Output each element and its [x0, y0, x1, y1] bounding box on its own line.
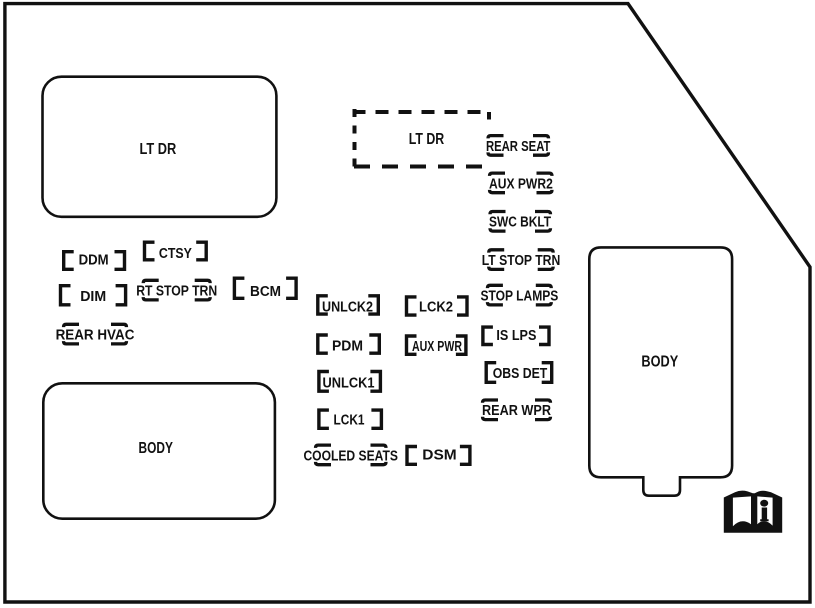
svg-text:BCM: BCM	[250, 284, 281, 300]
svg-text:OBS DET: OBS DET	[493, 366, 548, 382]
svg-text:UNLCK1: UNLCK1	[323, 376, 375, 392]
svg-text:STOP LAMPS: STOP LAMPS	[480, 289, 558, 305]
svg-text:BODY: BODY	[641, 354, 678, 371]
svg-text:SWC BKLT: SWC BKLT	[489, 215, 551, 231]
svg-text:RT STOP TRN: RT STOP TRN	[136, 284, 217, 300]
svg-text:PDM: PDM	[332, 339, 363, 355]
svg-text:CTSY: CTSY	[159, 246, 192, 262]
svg-text:REAR HVAC: REAR HVAC	[56, 328, 135, 344]
svg-text:BODY: BODY	[139, 440, 174, 457]
svg-text:LT STOP TRN: LT STOP TRN	[482, 253, 561, 269]
svg-text:LT DR: LT DR	[140, 141, 177, 158]
svg-text:LCK2: LCK2	[419, 300, 453, 316]
svg-text:LCK1: LCK1	[334, 413, 365, 429]
svg-text:COOLED SEATS: COOLED SEATS	[303, 448, 398, 464]
svg-text:DSM: DSM	[422, 448, 456, 464]
svg-text:DDM: DDM	[79, 252, 109, 268]
svg-text:REAR SEAT: REAR SEAT	[486, 139, 551, 155]
svg-text:DIM: DIM	[80, 289, 106, 305]
svg-text:IS LPS: IS LPS	[496, 328, 536, 344]
svg-text:UNLCK2: UNLCK2	[322, 299, 373, 315]
svg-text:REAR WPR: REAR WPR	[482, 403, 551, 419]
svg-text:LT DR: LT DR	[409, 131, 445, 148]
svg-text:AUX PWR: AUX PWR	[412, 339, 462, 355]
svg-text:AUX PWR2: AUX PWR2	[489, 176, 553, 192]
